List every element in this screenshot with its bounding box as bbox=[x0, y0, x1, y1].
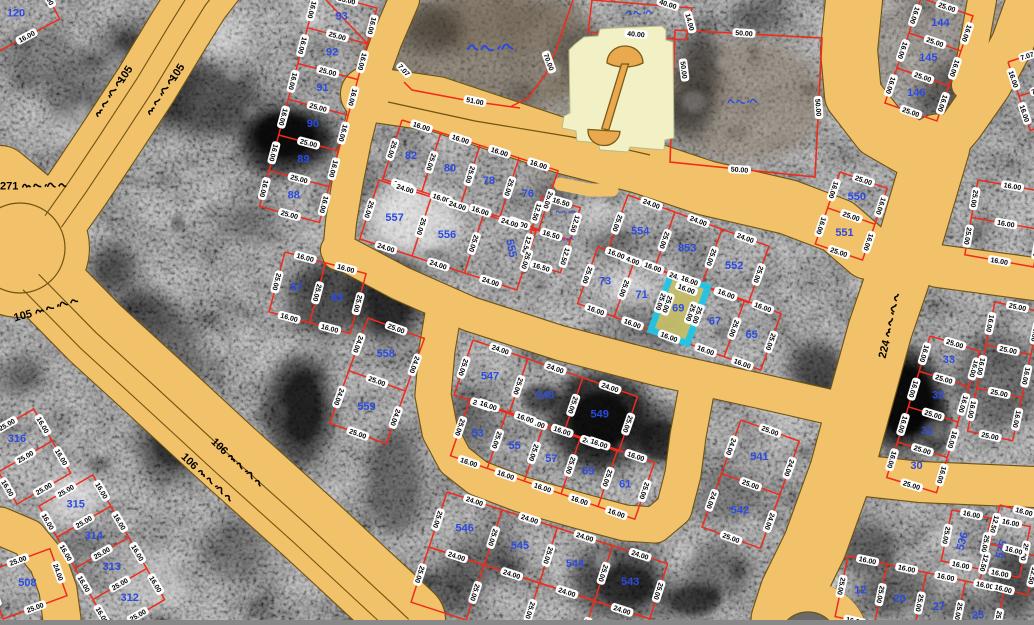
svg-text:53: 53 bbox=[472, 428, 484, 440]
svg-text:78: 78 bbox=[483, 175, 495, 187]
svg-text:554: 554 bbox=[631, 226, 650, 238]
svg-text:12: 12 bbox=[854, 585, 866, 597]
svg-text:542: 542 bbox=[731, 505, 749, 517]
svg-text:557: 557 bbox=[385, 212, 403, 224]
svg-text:315: 315 bbox=[67, 499, 85, 511]
svg-text:92: 92 bbox=[326, 46, 338, 58]
svg-text:558: 558 bbox=[377, 348, 395, 360]
svg-text:546: 546 bbox=[456, 522, 474, 534]
svg-text:548: 548 bbox=[536, 390, 554, 402]
svg-text:61: 61 bbox=[619, 478, 631, 490]
svg-text:87: 87 bbox=[290, 281, 302, 293]
svg-text:65: 65 bbox=[745, 329, 757, 341]
svg-text:89: 89 bbox=[331, 292, 343, 304]
svg-text:551: 551 bbox=[835, 227, 853, 239]
svg-text:547: 547 bbox=[481, 371, 499, 383]
svg-text:543: 543 bbox=[621, 576, 639, 588]
svg-text:50.00: 50.00 bbox=[813, 99, 821, 117]
svg-text:316: 316 bbox=[8, 433, 26, 445]
svg-text:90: 90 bbox=[307, 118, 319, 130]
svg-text:69: 69 bbox=[672, 302, 684, 314]
svg-text:559: 559 bbox=[357, 401, 375, 413]
svg-text:541: 541 bbox=[750, 451, 768, 463]
svg-text:55: 55 bbox=[508, 440, 520, 452]
svg-text:313: 313 bbox=[103, 561, 121, 573]
svg-text:25: 25 bbox=[972, 610, 984, 621]
svg-text:50.00: 50.00 bbox=[735, 30, 753, 38]
svg-text:80: 80 bbox=[444, 162, 456, 174]
svg-text:550: 550 bbox=[848, 191, 866, 203]
svg-text:20: 20 bbox=[893, 593, 905, 605]
svg-text:32: 32 bbox=[932, 389, 944, 401]
svg-text:314: 314 bbox=[85, 530, 104, 542]
svg-text:91: 91 bbox=[316, 82, 328, 94]
svg-text:73: 73 bbox=[599, 276, 611, 288]
svg-text:71: 71 bbox=[636, 289, 648, 301]
svg-text:31: 31 bbox=[921, 425, 933, 437]
svg-text:50.00: 50.00 bbox=[730, 166, 748, 174]
svg-text:146: 146 bbox=[907, 87, 925, 99]
svg-text:82: 82 bbox=[405, 150, 417, 162]
svg-text:27: 27 bbox=[933, 601, 945, 613]
svg-text:120: 120 bbox=[7, 8, 25, 20]
svg-text:545: 545 bbox=[511, 540, 529, 552]
svg-text:89: 89 bbox=[297, 154, 309, 166]
svg-text:549: 549 bbox=[591, 408, 609, 420]
svg-text:59: 59 bbox=[582, 466, 594, 478]
svg-text:544: 544 bbox=[566, 558, 585, 570]
svg-text:145: 145 bbox=[919, 52, 937, 64]
svg-text:508: 508 bbox=[18, 577, 36, 589]
svg-text:556: 556 bbox=[438, 229, 456, 241]
svg-text:93: 93 bbox=[336, 11, 348, 23]
svg-text:88: 88 bbox=[288, 189, 300, 201]
svg-text:67: 67 bbox=[709, 316, 721, 328]
svg-text:33: 33 bbox=[943, 354, 955, 366]
svg-text:271: 271 bbox=[0, 181, 18, 193]
svg-text:853: 853 bbox=[678, 243, 696, 255]
svg-text:144: 144 bbox=[931, 17, 950, 29]
svg-text:57: 57 bbox=[545, 453, 557, 465]
svg-text:552: 552 bbox=[725, 260, 743, 272]
svg-text:76: 76 bbox=[522, 188, 534, 200]
svg-text:30: 30 bbox=[910, 460, 922, 472]
svg-text:312: 312 bbox=[121, 592, 139, 604]
